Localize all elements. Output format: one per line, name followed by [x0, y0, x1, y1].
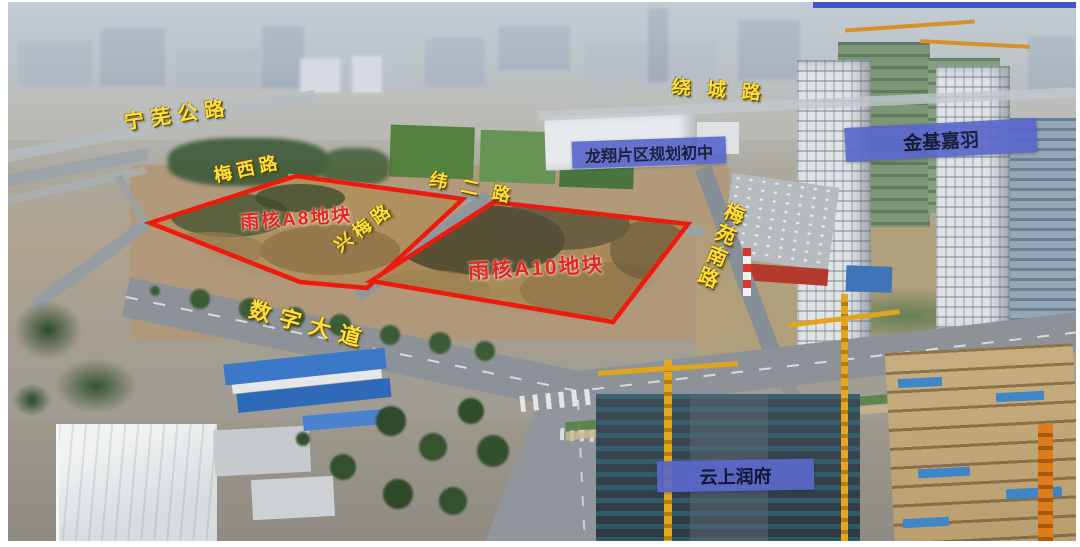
place-label-text: 龙翔片区规划初中: [585, 138, 714, 166]
white-border-top: [0, 0, 1080, 2]
white-border-right: [1076, 0, 1080, 547]
place-label-text: 金基嘉羽: [902, 125, 979, 156]
orange-crane: [1038, 424, 1053, 547]
white-border-left: [0, 0, 8, 547]
place-label-text: 云上润府: [699, 462, 771, 489]
place-label-yunshang-runfu: 云上润府: [657, 459, 815, 493]
tower-crane-mast: [664, 360, 672, 546]
place-label-longxiang-school: 龙翔片区规划初中: [572, 136, 727, 168]
annotated-aerial-photo: 宁芜公路 绕城路 梅西路 纬二路 兴梅路 梅苑南路 数字大道 雨核A8地块 雨核…: [0, 0, 1080, 547]
white-border-bottom: [0, 541, 1080, 547]
tower-crane-mast: [841, 294, 848, 547]
